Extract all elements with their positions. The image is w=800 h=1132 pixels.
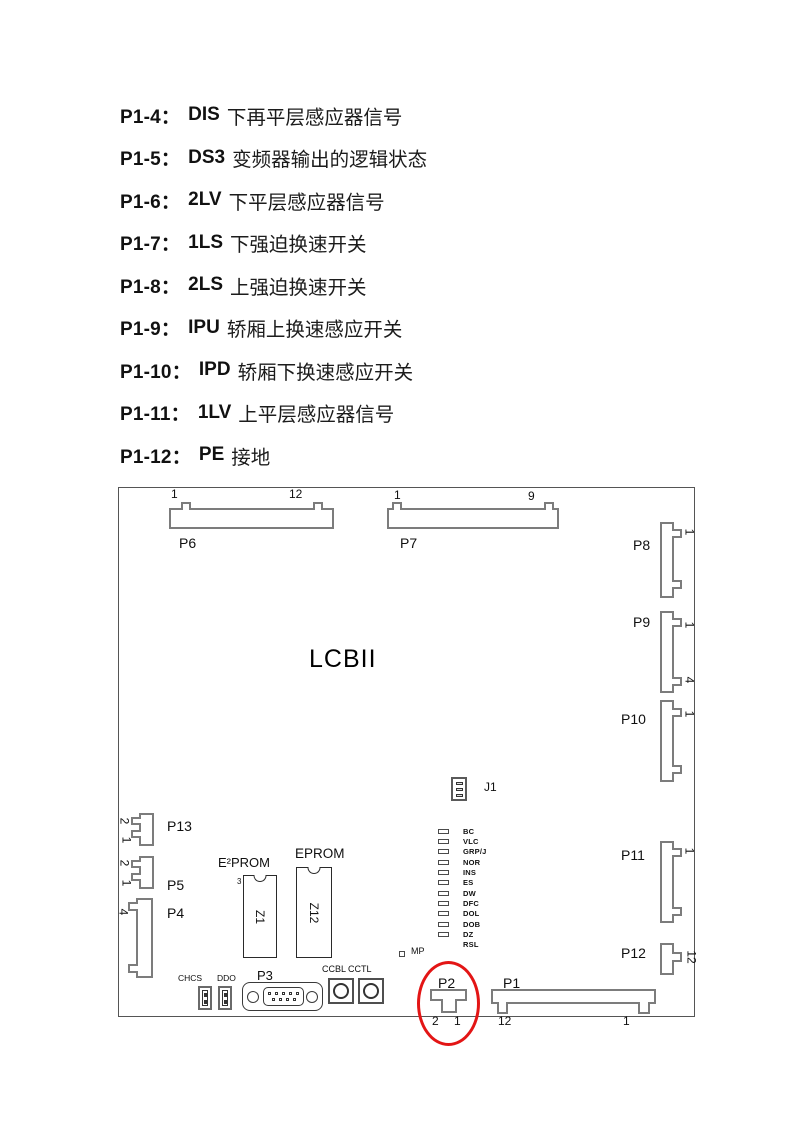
jumper-bar [456, 788, 463, 791]
led-indicator [438, 922, 449, 927]
ddo-switch [218, 986, 232, 1010]
pin-description-row: P1-10： IPD 轿厢下换速感应开关 [120, 349, 680, 392]
led-row: DW [438, 888, 558, 898]
connector-p12-tab [672, 952, 682, 962]
chcs-label: CHCS [178, 974, 202, 983]
db9-pin [275, 992, 278, 995]
switch-dot [204, 1000, 207, 1004]
switch-dot [224, 1000, 227, 1004]
p1-pin-1: 1 [623, 1015, 630, 1027]
led-indicator [438, 932, 449, 937]
ddo-label: DDO [217, 974, 236, 983]
connector-p9-tab [672, 618, 682, 627]
pot-circle [333, 983, 349, 999]
chip-z12-name: Z12 [307, 902, 321, 923]
pin-id: P1-10： [120, 357, 191, 384]
j1-label: J1 [484, 781, 497, 793]
connector-p1 [491, 989, 656, 1004]
p10-pin-1: 1 [683, 711, 695, 718]
connector-p5-tab [131, 860, 141, 868]
p5-label: P5 [167, 878, 184, 892]
db9-screw [306, 991, 318, 1003]
led-signal-label: ES [463, 878, 473, 887]
led-indicator [438, 860, 449, 865]
p11-pin-1: 1 [683, 848, 695, 855]
pin-id: P1-7： [120, 229, 180, 256]
pin-description-text: 下平层感应器信号 [229, 186, 385, 215]
db9-pin [293, 998, 296, 1001]
p9-label: P9 [633, 615, 650, 629]
led-signal-label: DOL [463, 909, 479, 918]
p12-label: P12 [621, 946, 646, 960]
switch-dot [204, 993, 207, 997]
pin-id: P1-6： [120, 187, 180, 214]
lcb2-board-diagram: LCBII 1 12 P6 1 9 P7 P8 1 P9 1 4 P10 1 [118, 487, 695, 1017]
connector-p4-tab [128, 964, 138, 973]
led-row: DOB [438, 919, 558, 929]
led-signal-label: DW [463, 889, 476, 898]
pin-description-text: 轿厢上换速感应开关 [227, 313, 403, 342]
p2-pin-1: 1 [454, 1015, 461, 1027]
eprom-title: EPROM [295, 847, 345, 861]
led-signal-label: DOB [463, 920, 480, 929]
pin-id: P1-8： [120, 272, 180, 299]
db9-pin [282, 992, 285, 995]
switch-dot [224, 993, 227, 997]
pin-description-text: 上平层感应器信号 [238, 398, 394, 427]
led-row: ES [438, 878, 558, 888]
ccbl-pot [328, 978, 354, 1004]
pin-id: P1-11： [120, 399, 190, 426]
led-signal-column: BC VLC GRP/J NOR [438, 826, 558, 950]
pin-id: P1-12： [120, 442, 191, 469]
p10-label: P10 [621, 712, 646, 726]
pin-signal-code: 2LV [188, 189, 221, 211]
pin-signal-code: 1LV [198, 402, 231, 424]
led-indicator [438, 901, 449, 906]
eeprom-pin-3: 3 [237, 878, 241, 886]
eeprom-chip-z1: Z1 [243, 875, 277, 958]
led-signal-label: VLC [463, 837, 479, 846]
jumper-bar [456, 794, 463, 797]
cctl-pot [358, 978, 384, 1004]
led-signal-label: RSL [463, 940, 479, 949]
connector-p10-tab [672, 765, 682, 774]
led-indicator [438, 839, 449, 844]
p4-label: P4 [167, 906, 184, 920]
db9-pin [286, 998, 289, 1001]
led-row: DFC [438, 898, 558, 908]
connector-p4 [136, 898, 153, 978]
db9-pin [272, 998, 275, 1001]
connector-p5-tab [131, 873, 141, 881]
connector-p13-tab [131, 830, 141, 838]
switch-slot [222, 990, 228, 1006]
jumper-j1 [451, 777, 467, 801]
connector-p7 [387, 508, 559, 529]
led-row: RSL [438, 940, 558, 950]
cctl-label: CCTL [348, 965, 372, 974]
chip-z1-name: Z1 [253, 909, 267, 923]
pin-signal-code: IPU [188, 317, 220, 339]
led-row: INS [438, 867, 558, 877]
p6-pin-12: 12 [289, 488, 302, 500]
led-indicator [438, 911, 449, 916]
connector-p13-tab [131, 817, 141, 825]
pin-id: P1-5： [120, 144, 180, 171]
led-indicator [438, 870, 449, 875]
pin-description-row: P1-4： DIS 下再平层感应器信号 [120, 94, 680, 137]
connector-p13 [139, 813, 154, 846]
pin-signal-code: 1LS [188, 232, 223, 254]
connector-p1-tab [497, 1002, 508, 1014]
led-signal-label: NOR [463, 858, 480, 867]
connector-p7-tab [392, 502, 402, 510]
eeprom-title: E²PROM [218, 856, 270, 869]
pin-id: P1-4： [120, 102, 180, 129]
mp-label: MP [411, 947, 425, 956]
p7-label: P7 [400, 536, 417, 550]
pin-description-text: 上强迫换速开关 [230, 271, 367, 300]
led-signal-label: GRP/J [463, 847, 487, 856]
led-signal-label: DFC [463, 899, 479, 908]
led-indicator [438, 880, 449, 885]
pin-signal-code: 2LS [188, 274, 223, 296]
connector-p3-db9 [242, 982, 323, 1011]
p13-label: P13 [167, 819, 192, 833]
pin-description-text: 接地 [231, 441, 270, 470]
pin-id: P1-9： [120, 314, 180, 341]
led-signal-label: INS [463, 868, 476, 877]
pin-description-row: P1-6： 2LV 下平层感应器信号 [120, 179, 680, 222]
pin-description-list: P1-4： DIS 下再平层感应器信号 P1-5： DS3 变频器输出的逻辑状态… [120, 94, 680, 477]
p7-pin-9: 9 [528, 490, 535, 502]
led-row: VLC [438, 836, 558, 846]
led-row: GRP/J [438, 847, 558, 857]
db9-pin [268, 992, 271, 995]
pin-description-row: P1-7： 1LS 下强迫换速开关 [120, 222, 680, 265]
connector-p10-tab [672, 708, 682, 717]
document-page: P1-4： DIS 下再平层感应器信号 P1-5： DS3 变频器输出的逻辑状态… [0, 0, 800, 1132]
jumper-bar [456, 782, 463, 785]
db9-pin [289, 992, 292, 995]
db9-pin [296, 992, 299, 995]
pin-description-text: 变频器输出的逻辑状态 [232, 143, 427, 172]
pin-description-text: 下强迫换速开关 [230, 228, 367, 257]
chcs-switch [198, 986, 212, 1010]
connector-p1-tab [638, 1002, 650, 1014]
led-indicator [438, 829, 449, 834]
connector-p6-tab [181, 502, 191, 510]
pin-description-row: P1-11： 1LV 上平层感应器信号 [120, 392, 680, 435]
connector-p8-tab [672, 529, 682, 538]
p11-label: P11 [621, 848, 645, 862]
connector-p11-tab [672, 907, 682, 916]
mp-testpoint [399, 951, 405, 957]
p5-pin-2: 2 [118, 860, 130, 867]
connector-p11-tab [672, 848, 682, 857]
ccbl-label: CCBL [322, 965, 346, 974]
led-signal-label: DZ [463, 930, 473, 939]
pin-signal-code: PE [199, 444, 224, 466]
board-title: LCBII [309, 645, 377, 674]
p12-pin-12: 12 [686, 950, 698, 963]
led-indicator [438, 849, 449, 854]
pin-description-text: 轿厢下换速感应开关 [238, 356, 414, 385]
pin-description-row: P1-8： 2LS 上强迫换速开关 [120, 264, 680, 307]
p13-pin-2: 2 [118, 818, 130, 825]
db9-screw [247, 991, 259, 1003]
p8-label: P8 [633, 538, 650, 552]
led-indicator [438, 891, 449, 896]
eprom-chip-z12: Z12 [296, 867, 332, 958]
pin-description-row: P1-9： IPU 轿厢上换速感应开关 [120, 307, 680, 350]
p2-pin-2: 2 [432, 1015, 439, 1027]
led-row: NOR [438, 857, 558, 867]
pin-signal-code: DS3 [188, 147, 225, 169]
connector-p6-tab [313, 502, 323, 510]
p1-label: P1 [503, 976, 520, 990]
connector-p4-tab [128, 902, 138, 911]
pin-description-row: P1-5： DS3 变频器输出的逻辑状态 [120, 137, 680, 180]
chip-notch [308, 867, 321, 874]
pin-signal-code: IPD [199, 359, 231, 381]
p9-pin-1: 1 [683, 622, 695, 629]
switch-slot [202, 990, 208, 1006]
pin-description-row: P1-12： PE 接地 [120, 434, 680, 477]
connector-p5 [139, 856, 154, 889]
p3-label: P3 [257, 969, 273, 982]
pot-circle [363, 983, 379, 999]
connector-p6 [169, 508, 334, 529]
pin-signal-code: DIS [188, 104, 220, 126]
chip-notch [254, 875, 267, 882]
led-signal-label: BC [463, 827, 474, 836]
led-row: BC [438, 826, 558, 836]
db9-pin [279, 998, 282, 1001]
db9-dsub [263, 987, 304, 1006]
p6-label: P6 [179, 536, 196, 550]
connector-p7-tab [544, 502, 554, 510]
p8-pin-1: 1 [683, 529, 695, 536]
p9-pin-4: 4 [683, 677, 695, 684]
p6-pin-1: 1 [171, 488, 178, 500]
led-row: DOL [438, 909, 558, 919]
p2-highlight-ellipse [417, 961, 480, 1046]
p7-pin-1: 1 [394, 489, 401, 501]
p1-pin-12: 12 [498, 1015, 511, 1027]
connector-p9-tab [672, 677, 682, 686]
connector-p8-tab [672, 580, 682, 589]
led-row: DZ [438, 929, 558, 939]
pin-description-text: 下再平层感应器信号 [227, 101, 403, 130]
